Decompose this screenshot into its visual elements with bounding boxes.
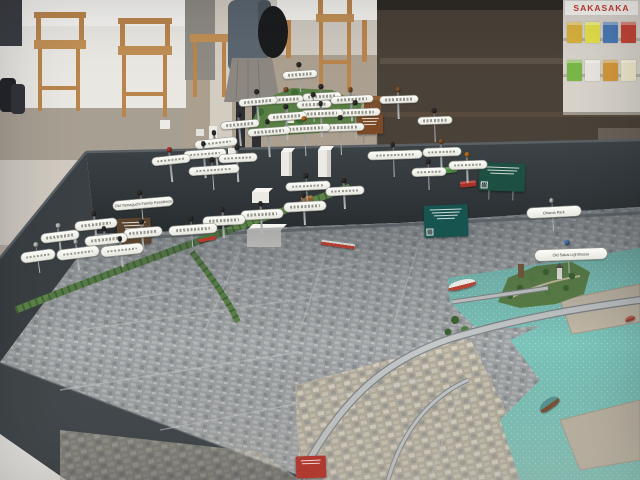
- photo-vignette: [0, 0, 640, 480]
- photo-of-sakai-city-model: SAKASAKA Old Yamaguchi Family ResidenceO…: [0, 0, 640, 480]
